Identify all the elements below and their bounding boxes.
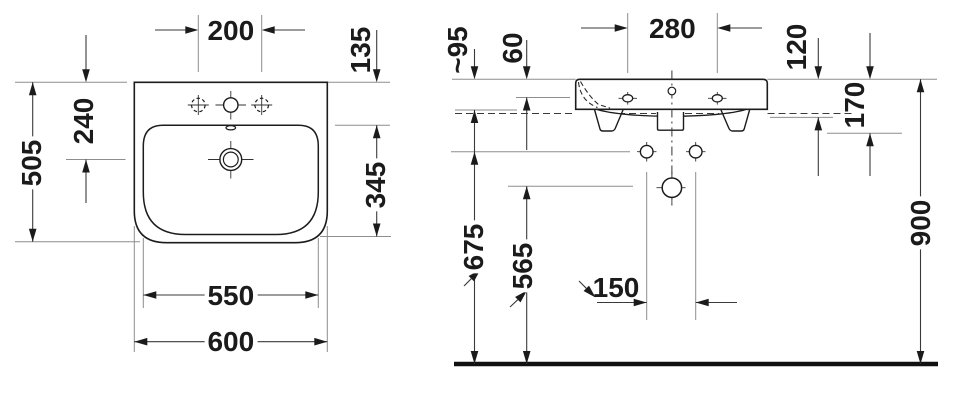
dim-label-120: 120 — [783, 24, 811, 71]
technical-drawing-canvas: 200 135 505 240 345 550 600 ~95 60 280 1… — [0, 0, 960, 403]
overflow-slot — [226, 126, 236, 130]
drain-outlet — [657, 172, 686, 204]
dim-label-60: 60 — [499, 32, 527, 63]
dim-label-345: 345 — [361, 158, 391, 211]
dim-label-95: ~95 — [444, 26, 472, 74]
dim-label-565: 565 — [508, 240, 538, 293]
dim-label-505: 505 — [17, 137, 47, 190]
outlet-tail — [658, 112, 684, 130]
tap-hole-center — [224, 98, 238, 112]
dim-label-135: 135 — [347, 27, 375, 74]
dim-label-550: 550 — [204, 281, 257, 311]
dim-label-150: 150 — [593, 274, 640, 302]
dim-label-600: 600 — [204, 327, 257, 357]
top-view — [134, 82, 327, 242]
dim-label-675: 675 — [459, 221, 489, 274]
dim-label-900: 900 — [906, 196, 936, 249]
dim-label-200: 200 — [204, 16, 257, 46]
drawing-linework — [0, 0, 960, 403]
dim-label-170: 170 — [841, 81, 869, 128]
dim-label-280: 280 — [646, 14, 699, 44]
dim-label-240: 240 — [70, 97, 98, 144]
wall-mounting-holes — [637, 142, 706, 162]
